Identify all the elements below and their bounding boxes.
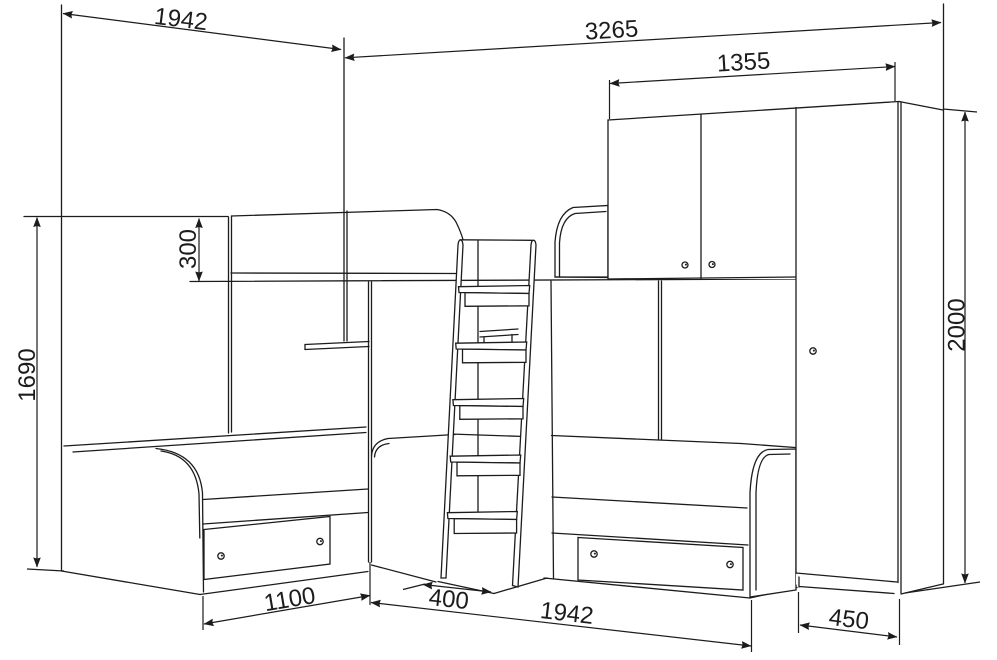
svg-text:300: 300	[175, 229, 202, 269]
svg-text:450: 450	[827, 604, 870, 635]
svg-text:3265: 3265	[584, 15, 639, 45]
svg-text:1942: 1942	[539, 597, 595, 630]
svg-text:1100: 1100	[262, 582, 317, 617]
svg-text:1942: 1942	[153, 3, 209, 36]
svg-text:1690: 1690	[14, 348, 41, 401]
svg-text:2000: 2000	[944, 298, 971, 351]
svg-text:1355: 1355	[716, 47, 771, 77]
svg-text:400: 400	[427, 584, 470, 615]
